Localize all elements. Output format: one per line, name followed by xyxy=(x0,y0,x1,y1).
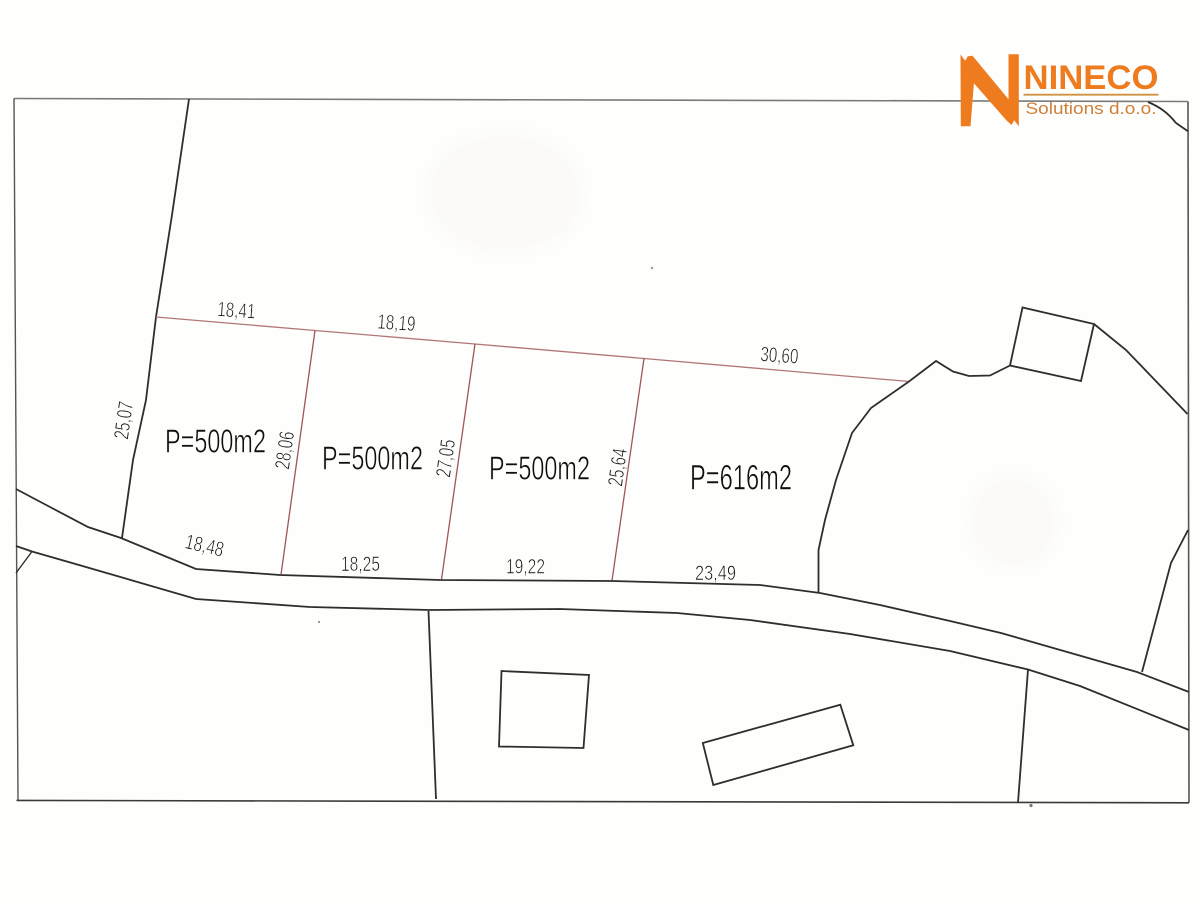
svg-text:NINECO: NINECO xyxy=(1024,59,1159,97)
svg-text:P=500m2: P=500m2 xyxy=(489,450,590,487)
svg-text:18,41: 18,41 xyxy=(217,298,257,324)
svg-text:18,25: 18,25 xyxy=(341,553,380,576)
svg-text:18,19: 18,19 xyxy=(377,311,417,337)
svg-text:Solutions d.o.o.: Solutions d.o.o. xyxy=(1026,99,1157,118)
svg-text:23,49: 23,49 xyxy=(695,562,736,585)
svg-text:P=616m2: P=616m2 xyxy=(690,459,792,498)
svg-text:19,22: 19,22 xyxy=(506,556,545,579)
svg-text:30,60: 30,60 xyxy=(760,343,800,369)
svg-text:P=500m2: P=500m2 xyxy=(165,423,266,460)
svg-text:P=500m2: P=500m2 xyxy=(322,440,423,477)
